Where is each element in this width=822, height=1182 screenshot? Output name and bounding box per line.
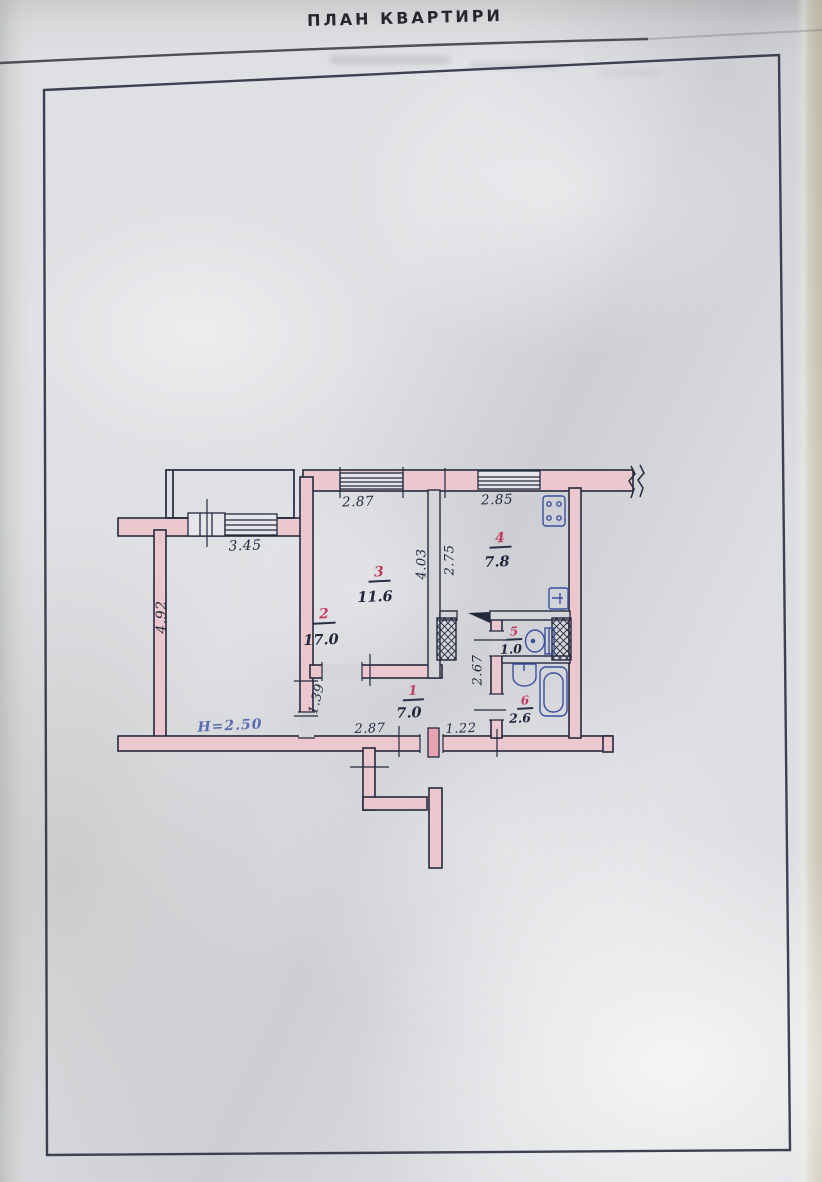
entrance-door-leaf [428,728,439,757]
room5-area: 1.0 [500,641,522,657]
floor-plan-drawing [0,0,822,1182]
room2-number: 2 [313,606,336,625]
dim-room4-top: 2.85 [481,491,514,508]
scanned-paper-photo: ПЛАН КВАРТИРИ [0,0,822,1182]
window-room3 [340,473,403,489]
dim-room2-left: 4.92 [154,600,170,633]
wall-bottom-end-hook [603,736,613,752]
toilet-icon [526,628,555,654]
balcony-outline [166,470,294,518]
room3-area: 11.6 [357,588,393,606]
bathtub-icon [540,667,567,716]
room5-number: 5 [505,624,522,641]
room2-area: 17.0 [303,631,339,649]
wall-right [569,488,581,738]
room1-number: 1 [402,683,424,701]
window-room2 [225,514,277,535]
room6-area: 2.6 [509,710,531,726]
dim-hall-bottom-right: 1.22 [445,721,476,737]
dim-wc-corridor: 2.67 [471,655,486,686]
fixtures [513,496,568,716]
door-bathroom [490,694,503,720]
door-room3 [322,664,362,679]
room6-number: 6 [516,693,533,710]
room1-area: 7.0 [396,704,422,722]
dim-hall-bottom-left: 2.87 [354,721,385,737]
dim-room2-top: 3.45 [228,537,262,554]
kitchen-sink-icon [549,588,568,609]
wall-stair-bottom [363,797,427,810]
dim-room4-left: 2.75 [443,545,458,576]
dim-room3-top: 2.87 [342,493,375,510]
dim-room3-right: 4.03 [415,549,430,580]
wall-stair-right [429,788,442,868]
window-room4 [478,471,540,489]
stove-icon [543,496,565,526]
room4-area: 7.8 [484,553,510,571]
wall-room2-left [154,530,166,740]
vent-shaft-hatch [552,618,571,660]
room3-number: 3 [368,564,391,583]
washbasin-icon [513,664,536,686]
vent-shaft-hatch [437,618,456,660]
room4-number: 4 [489,530,512,549]
ceiling-height-note: H=2.50 [197,716,263,735]
